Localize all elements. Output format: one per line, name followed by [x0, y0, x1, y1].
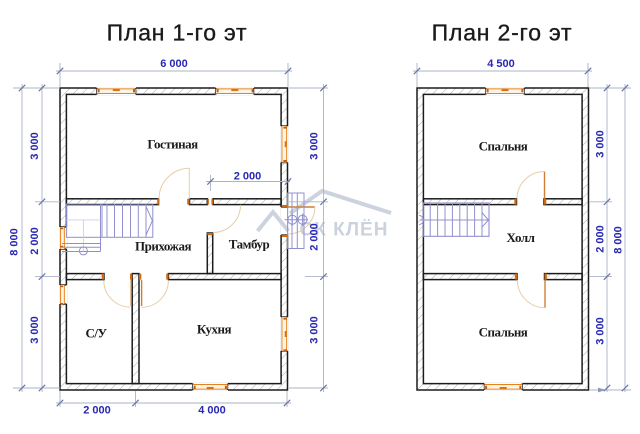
- svg-text:2 000: 2 000: [309, 223, 321, 251]
- svg-text:3 000: 3 000: [309, 316, 321, 344]
- svg-text:4 000: 4 000: [198, 405, 226, 417]
- svg-text:Спальня: Спальня: [479, 139, 528, 154]
- svg-text:2 000: 2 000: [29, 227, 41, 255]
- svg-text:8 000: 8 000: [9, 228, 21, 256]
- svg-text:Кухня: Кухня: [197, 322, 232, 337]
- svg-text:2 000: 2 000: [595, 225, 607, 253]
- svg-text:План 2-го эт: План 2-го эт: [432, 20, 573, 46]
- svg-text:3 000: 3 000: [309, 132, 321, 160]
- svg-text:Гостиная: Гостиная: [147, 137, 198, 152]
- svg-text:3 000: 3 000: [595, 317, 607, 345]
- svg-text:2 000: 2 000: [83, 405, 111, 417]
- svg-text:С/У: С/У: [85, 326, 107, 341]
- svg-text:3 000: 3 000: [595, 130, 607, 158]
- svg-text:4 500: 4 500: [487, 58, 515, 70]
- svg-text:Прихожая: Прихожая: [135, 239, 191, 254]
- svg-text:2 000: 2 000: [234, 171, 262, 183]
- svg-text:Тамбур: Тамбур: [229, 237, 270, 252]
- svg-text:6 000: 6 000: [160, 58, 188, 70]
- svg-text:3 000: 3 000: [29, 316, 41, 344]
- svg-text:Спальня: Спальня: [479, 325, 528, 340]
- svg-text:3 000: 3 000: [29, 132, 41, 160]
- svg-text:План 1-го эт: План 1-го эт: [107, 20, 248, 46]
- svg-text:8 000: 8 000: [613, 226, 625, 254]
- svg-text:Холл: Холл: [507, 230, 535, 245]
